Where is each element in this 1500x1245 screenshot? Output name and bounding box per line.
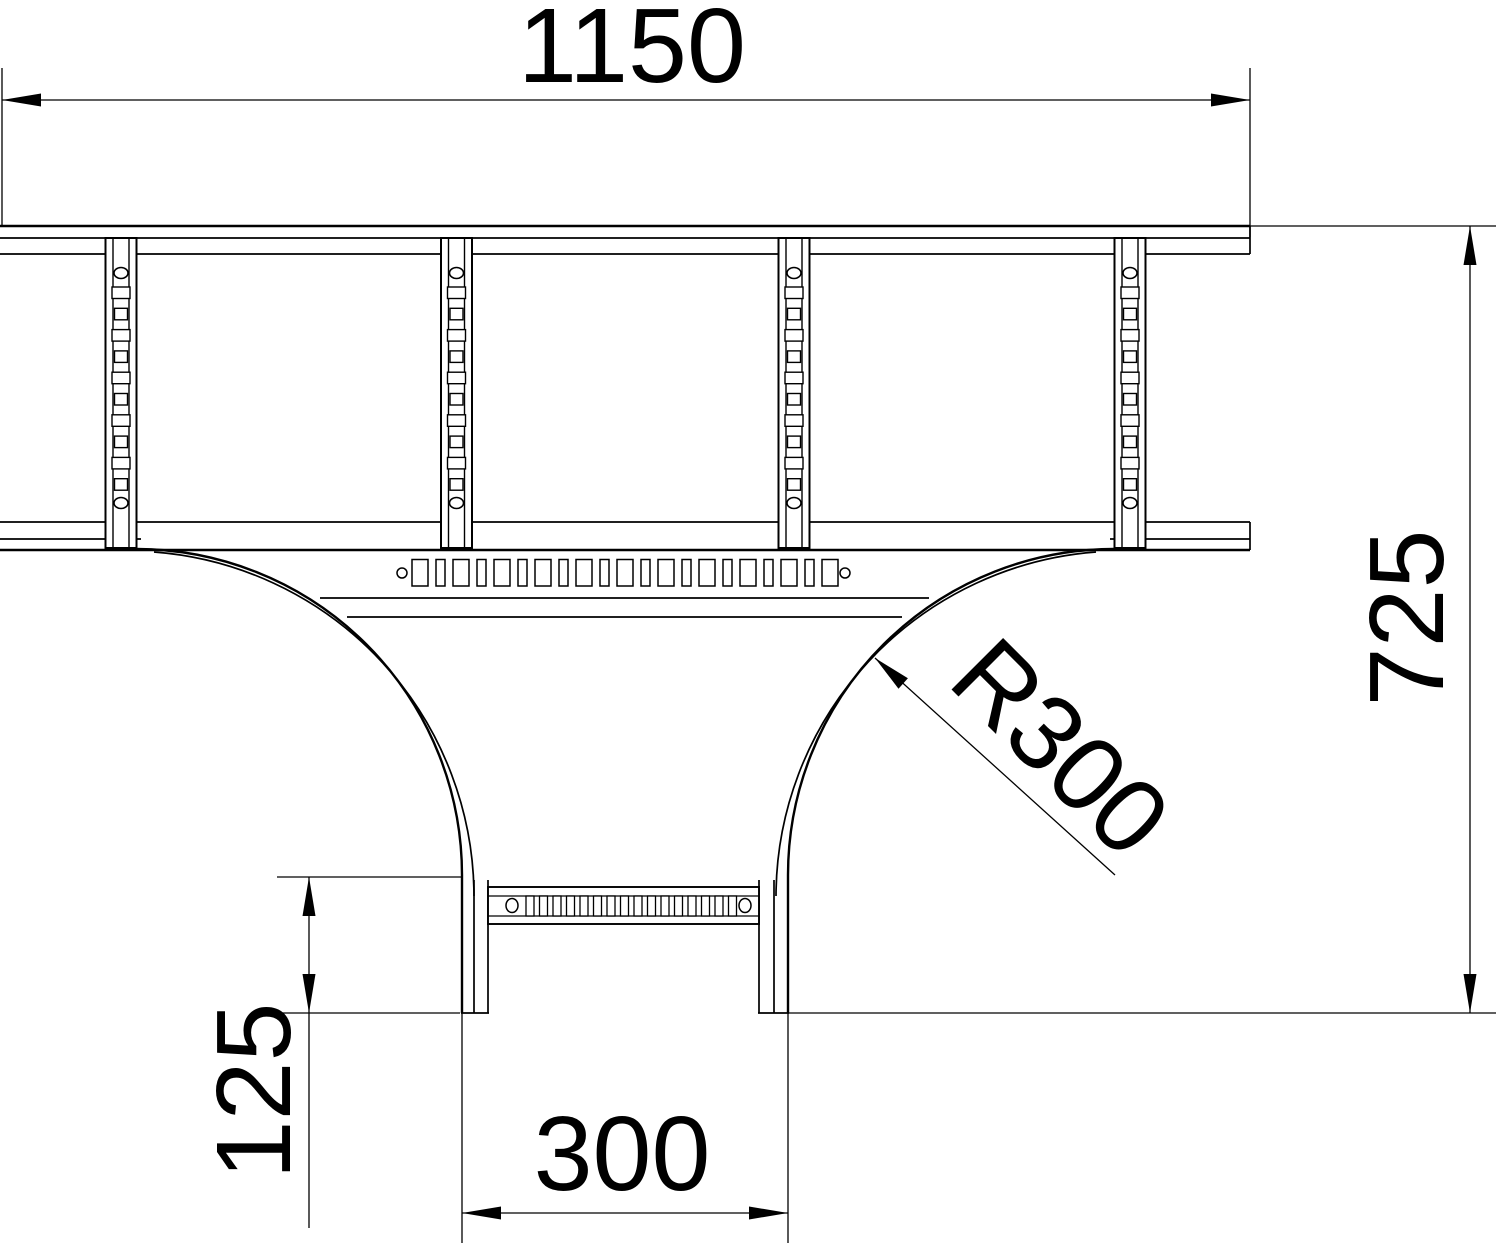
branch-rung-end-hole	[506, 899, 518, 913]
rung-slot	[112, 415, 130, 427]
plate-slot	[740, 560, 756, 587]
rung-slot	[1124, 308, 1137, 320]
rung-slot	[1121, 372, 1139, 384]
plate-slot	[453, 560, 469, 587]
branch-rung-slot	[661, 896, 669, 916]
rung-slot	[448, 457, 466, 469]
dim-label-branch-tangent: 125	[195, 1003, 313, 1180]
rung-slot	[1124, 394, 1137, 406]
rung-slot	[115, 308, 128, 320]
rung-slot	[450, 351, 463, 363]
rung-slot	[448, 415, 466, 427]
rung-slot	[450, 394, 463, 406]
plate-slot	[477, 560, 486, 587]
plate-slot	[412, 560, 428, 587]
branch-rung	[488, 887, 759, 924]
arrowhead-up-icon	[303, 877, 316, 916]
branch-right-rail	[758, 875, 789, 1013]
rung-slot	[785, 287, 803, 299]
branch-rung-slot	[621, 896, 629, 916]
branch-rung-slot	[580, 896, 588, 916]
dim-label-branch-width: 300	[534, 1095, 711, 1213]
left-fillet	[136, 549, 474, 896]
branch-rung-end-hole	[739, 899, 751, 913]
arrowhead-up-icon	[1464, 226, 1477, 265]
rung-slot	[785, 457, 803, 469]
branch-rung-slot	[675, 896, 683, 916]
rung-fixing-hole	[114, 498, 128, 509]
dimension-branch-tangent: 125	[195, 877, 461, 1228]
branch-rung-slot	[634, 896, 642, 916]
plate-slot	[658, 560, 674, 587]
branch-rung-slot	[567, 896, 575, 916]
technical-drawing-page: 1150 725 R300 125 300	[0, 0, 1500, 1245]
rung-slot	[1121, 287, 1139, 299]
junction-plate-perforation	[397, 560, 850, 587]
arrowhead-down-icon	[1464, 974, 1477, 1013]
plate-slot	[805, 560, 814, 587]
plate-slot	[600, 560, 609, 587]
plate-end-hole	[397, 568, 407, 578]
arrowhead-left-icon	[462, 1207, 501, 1220]
plate-slot	[723, 560, 732, 587]
plate-slot	[617, 560, 633, 587]
plate-slot	[494, 560, 510, 587]
main-run-bottom-rail	[0, 522, 1250, 550]
t-piece-drawing: 1150 725 R300 125 300	[0, 0, 1500, 1245]
plate-slot	[436, 560, 445, 587]
rung-slot	[788, 351, 801, 363]
rung-slot	[788, 308, 801, 320]
plate-slot	[518, 560, 527, 587]
rung-slot	[115, 394, 128, 406]
rung-slot	[112, 457, 130, 469]
branch-left-rail	[461, 875, 489, 1013]
rung-slot	[112, 330, 130, 342]
rung-slot	[448, 372, 466, 384]
rung-slot	[112, 287, 130, 299]
rung-fixing-hole	[787, 498, 801, 509]
rung-slot	[788, 436, 801, 448]
plate-slot	[682, 560, 691, 587]
arrowhead-right-icon	[1211, 94, 1250, 107]
plate-slot	[559, 560, 568, 587]
junction-plate	[320, 560, 929, 618]
rung-slot	[1124, 479, 1137, 491]
rung-slot	[785, 372, 803, 384]
branch-rung-slot	[702, 896, 710, 916]
arrowhead-left-icon	[2, 94, 41, 107]
rung-fixing-hole	[787, 268, 801, 279]
branch-rung-slot	[715, 896, 723, 916]
branch-rung-slot	[594, 896, 602, 916]
rung-slot	[450, 479, 463, 491]
rung-slot	[448, 287, 466, 299]
dim-label-overall-depth: 725	[1348, 530, 1466, 707]
rung-slot	[1124, 436, 1137, 448]
branch-rung-slot	[607, 896, 615, 916]
dim-label-bend-radius: R300	[929, 616, 1192, 879]
plate-slot	[764, 560, 773, 587]
rung-slot	[1124, 351, 1137, 363]
branch-rung-slot	[648, 896, 656, 916]
rung-slot	[115, 479, 128, 491]
rung-slot	[115, 436, 128, 448]
branch-rung-slot	[526, 896, 534, 916]
plate-end-hole	[840, 568, 850, 578]
rung-slot	[115, 351, 128, 363]
rung-fixing-hole	[450, 498, 464, 509]
main-run-top-rail	[0, 226, 1250, 254]
plate-slot	[781, 560, 797, 587]
plate-slot	[822, 560, 838, 587]
plate-slot	[641, 560, 650, 587]
rung-slot	[450, 308, 463, 320]
rung-slot	[1121, 415, 1139, 427]
rung-slot	[1121, 330, 1139, 342]
rung-slot	[788, 394, 801, 406]
dimension-branch-width: 300	[462, 1013, 788, 1243]
rung-fixing-hole	[1123, 498, 1137, 509]
plate-slot	[535, 560, 551, 587]
branch-rung-slot	[729, 896, 737, 916]
radius-callout: R300	[875, 616, 1192, 879]
main-run-rungs	[106, 238, 1146, 548]
dimension-main-length: 1150	[2, 0, 1250, 237]
rung-slot	[450, 436, 463, 448]
branch-rung-slot	[553, 896, 561, 916]
branch-rung-slot	[540, 896, 548, 916]
rung-fixing-hole	[114, 268, 128, 279]
rung-slot	[788, 479, 801, 491]
arrowhead-right-icon	[749, 1207, 788, 1220]
rung-slot	[112, 372, 130, 384]
plate-slot	[699, 560, 715, 587]
rung-slot	[785, 415, 803, 427]
rung-fixing-hole	[1123, 268, 1137, 279]
branch-rung-slot	[688, 896, 696, 916]
rung-slot	[448, 330, 466, 342]
rung-slot	[1121, 457, 1139, 469]
dim-label-main-length: 1150	[518, 0, 746, 105]
rung-fixing-hole	[450, 268, 464, 279]
rung-slot	[785, 330, 803, 342]
plate-slot	[576, 560, 592, 587]
